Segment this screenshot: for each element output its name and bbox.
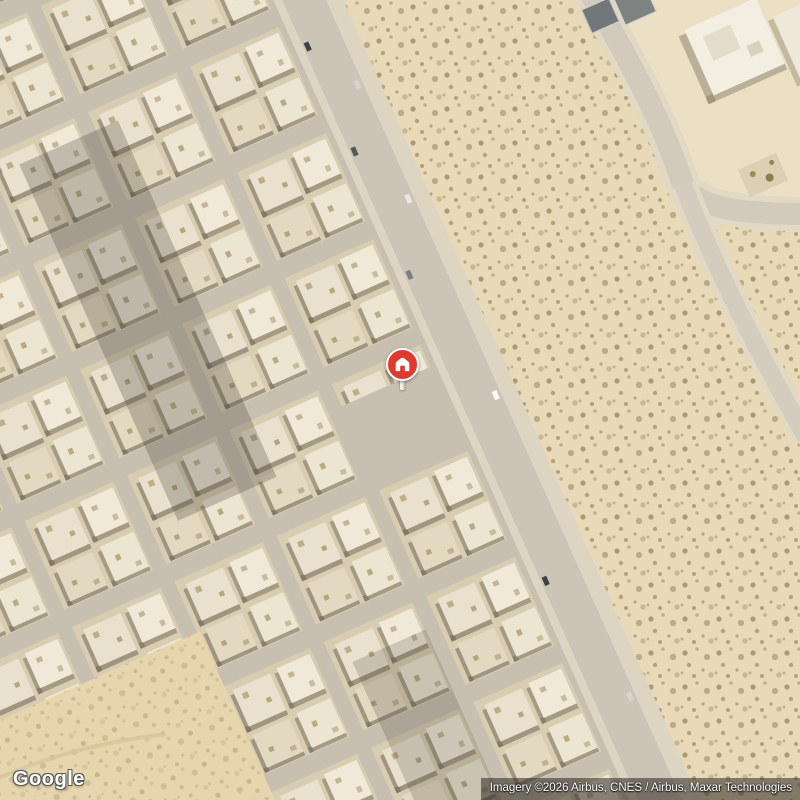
satellite-imagery-layer	[0, 0, 800, 800]
google-logo[interactable]: Google	[13, 768, 85, 791]
house-icon	[393, 355, 412, 374]
pin-circle	[386, 348, 419, 381]
map-attribution: Imagery ©2026 Airbus, CNES / Airbus, Max…	[481, 778, 800, 800]
map-viewport[interactable]: Google Imagery ©2026 Airbus, CNES / Airb…	[0, 0, 800, 800]
attribution-text: Imagery ©2026 Airbus, CNES / Airbus, Max…	[490, 782, 792, 794]
